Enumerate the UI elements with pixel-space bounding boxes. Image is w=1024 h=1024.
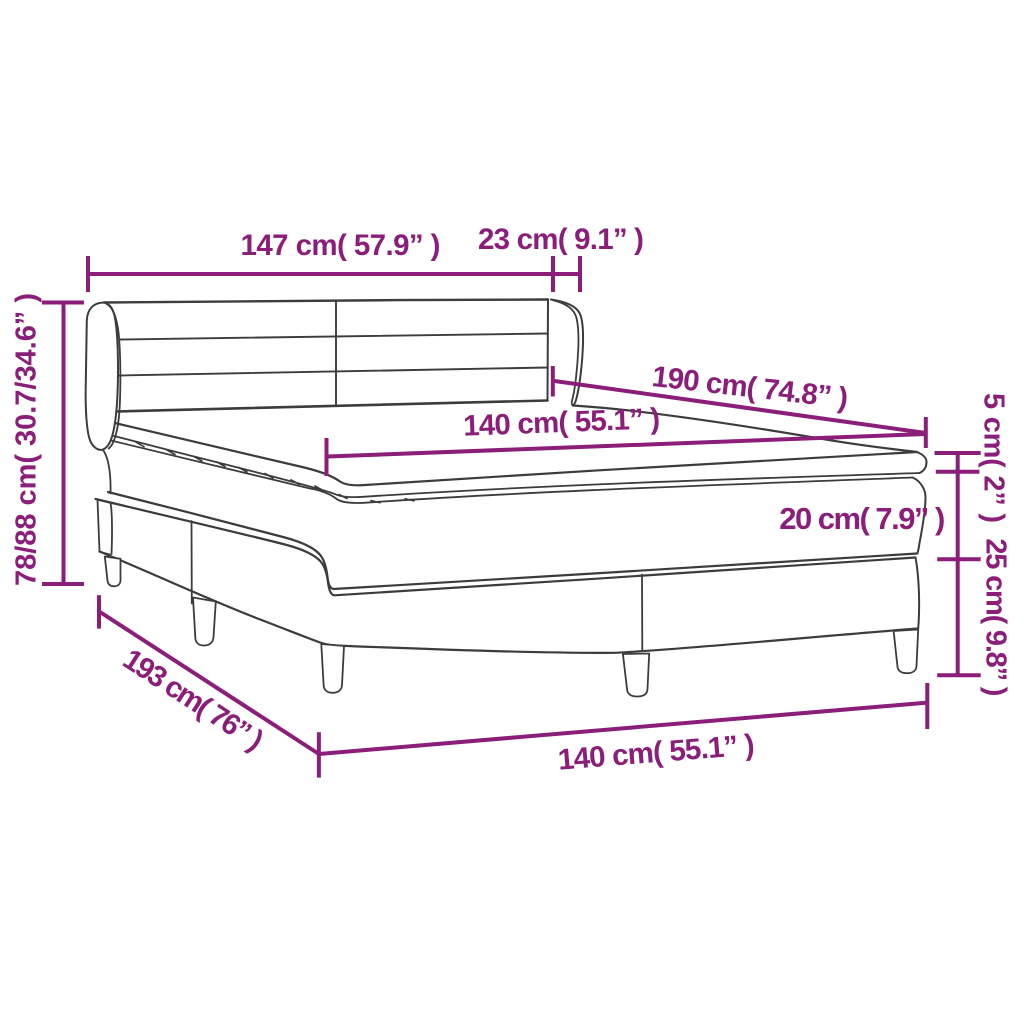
svg-text:147 cm( 57.9” ): 147 cm( 57.9” ) [241, 229, 441, 262]
svg-text:20 cm( 7.9” ): 20 cm( 7.9” ) [779, 501, 945, 536]
svg-text:25 cm( 9.8” ): 25 cm( 9.8” ) [980, 538, 1012, 696]
svg-text:5 cm( 2” ): 5 cm( 2” ) [978, 393, 1010, 523]
svg-text:78/88 cm( 30.7/34.6” ): 78/88 cm( 30.7/34.6” ) [11, 293, 43, 586]
svg-text:23 cm( 9.1” ): 23 cm( 9.1” ) [478, 223, 644, 256]
